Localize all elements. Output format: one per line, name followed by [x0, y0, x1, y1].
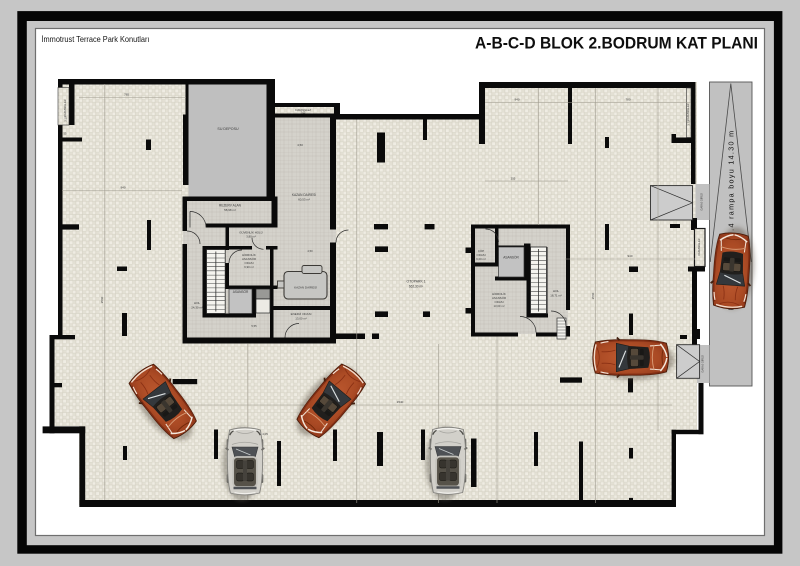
svg-text:2.10: 2.10: [64, 116, 68, 122]
svg-text:4,05: 4,05: [262, 432, 268, 436]
svg-text:ASANSÖR: ASANSÖR: [242, 257, 256, 261]
svg-text:4,50: 4,50: [307, 249, 313, 253]
svg-text:A-B-C-D BLOK 2.BODRUM KAT PLAN: A-B-C-D BLOK 2.BODRUM KAT PLANI: [475, 35, 758, 53]
svg-text:940: 940: [120, 186, 125, 190]
svg-text:7.05: 7.05: [301, 112, 306, 115]
svg-text:HOL: HOL: [194, 301, 201, 305]
svg-text:13,00 m²: 13,00 m²: [493, 304, 504, 308]
svg-text:6,90 m²: 6,90 m²: [244, 265, 254, 269]
svg-text:KURANGLEZ: KURANGLEZ: [686, 103, 690, 120]
svg-text:60,53 m²: 60,53 m²: [298, 198, 310, 202]
svg-text:REZERV ALAN: REZERV ALAN: [219, 204, 242, 208]
svg-text:ENERJİ ODASI: ENERJİ ODASI: [291, 311, 312, 316]
svg-text:HİDROLİK: HİDROLİK: [492, 291, 506, 296]
svg-text:ODASI: ODASI: [495, 300, 504, 304]
svg-text:4,50: 4,50: [297, 143, 303, 147]
svg-text:HOL: HOL: [553, 289, 560, 293]
svg-text:KURANGLEZ: KURANGLEZ: [697, 238, 701, 255]
svg-text:GÜVENLİK HOLÜ: GÜVENLİK HOLÜ: [239, 230, 262, 235]
svg-text:58,98 m²: 58,98 m²: [224, 208, 236, 212]
svg-text:SU DEPOSU: SU DEPOSU: [217, 127, 239, 131]
svg-text:ASANSÖR: ASANSÖR: [233, 290, 249, 294]
svg-text:3,80 m²: 3,80 m²: [246, 235, 256, 239]
svg-text:3.75: 3.75: [686, 120, 690, 126]
svg-text:İmmotrust Terrace Park Konutla: İmmotrust Terrace Park Konutları: [42, 35, 150, 44]
svg-text:KURANGLEZ: KURANGLEZ: [63, 99, 67, 116]
svg-text:HİDROLİK: HİDROLİK: [242, 252, 256, 257]
svg-text:2560: 2560: [100, 296, 104, 303]
svg-text:KAZAN DAİRESİ: KAZAN DAİRESİ: [294, 285, 317, 290]
svg-text:1540: 1540: [397, 400, 404, 404]
svg-text:662,30 m²: 662,30 m²: [409, 285, 423, 289]
svg-text:24,30 m²: 24,30 m²: [191, 306, 202, 310]
svg-text:ASANSÖR: ASANSÖR: [492, 296, 506, 300]
svg-text:6,00 m²: 6,00 m²: [476, 257, 486, 261]
svg-text:ÇÖP: ÇÖP: [478, 249, 484, 253]
svg-text:ODASI: ODASI: [245, 261, 254, 265]
svg-text:55: 55: [64, 132, 67, 136]
svg-text:940: 940: [627, 254, 632, 258]
svg-text:940: 940: [514, 98, 519, 102]
svg-text:18,71 m²: 18,71 m²: [550, 294, 561, 298]
svg-text:780: 780: [625, 98, 630, 102]
svg-text:KAZAN DAİRESİ: KAZAN DAİRESİ: [292, 192, 316, 197]
svg-text:2560: 2560: [591, 292, 595, 299]
svg-text:13,00 m²: 13,00 m²: [295, 317, 306, 321]
svg-text:785: 785: [124, 93, 129, 97]
svg-text:ASANSÖR: ASANSÖR: [503, 256, 519, 260]
svg-text:5,55: 5,55: [251, 324, 257, 328]
svg-text:ODASI: ODASI: [477, 253, 486, 257]
svg-text:OTOPARK 1: OTOPARK 1: [406, 280, 425, 284]
svg-text:255: 255: [511, 177, 516, 181]
